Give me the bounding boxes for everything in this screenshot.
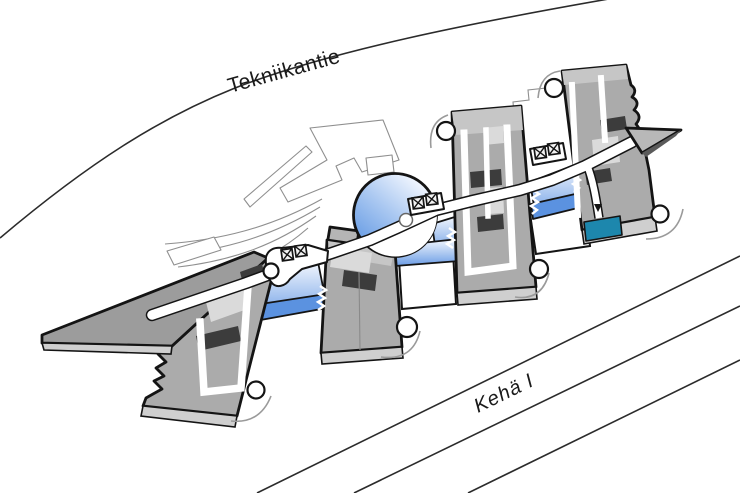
terrace-arc xyxy=(165,199,322,244)
cylinder-tower xyxy=(545,79,563,97)
cylinder-tower xyxy=(248,382,265,399)
cylinder-tower xyxy=(397,317,417,337)
site-plan-page: Tekniikantie Kehä I xyxy=(0,0,740,493)
building-west-wing xyxy=(42,252,274,427)
cylinder-tower xyxy=(530,260,548,278)
cylinder-tower xyxy=(437,122,455,140)
road-label-keha-i: Kehä I xyxy=(471,370,538,418)
building-complex xyxy=(42,65,683,427)
context-pavilion-outline xyxy=(366,155,394,175)
road-label-tekniikantie: Tekniikantie xyxy=(225,45,343,98)
cylinder-tower xyxy=(264,264,279,279)
site-plan-svg: Tekniikantie Kehä I xyxy=(0,0,740,493)
cylinder-tower xyxy=(652,206,669,223)
east-corridor-inner xyxy=(601,78,605,140)
